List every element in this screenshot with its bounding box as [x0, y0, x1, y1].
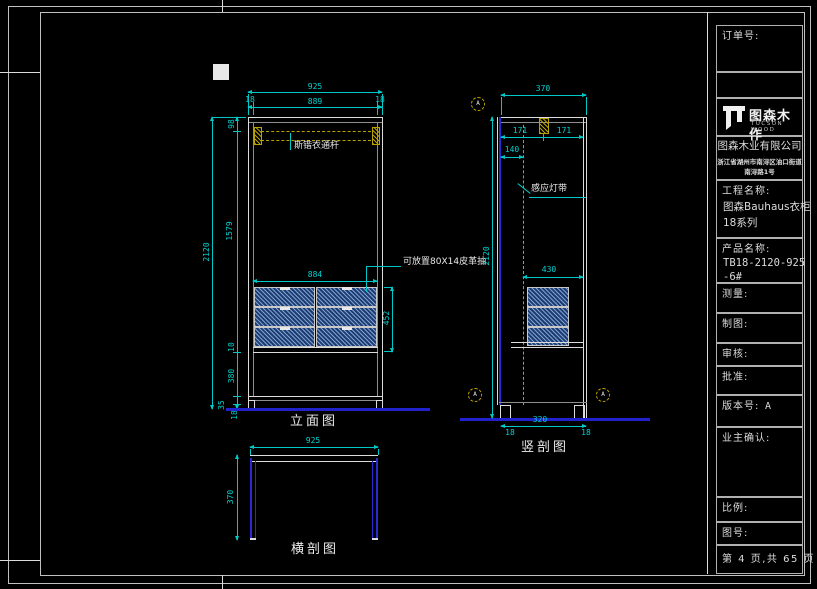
floor-line: [226, 408, 430, 411]
titleblock-cell-logo: 图森木作 TUCSON WOOD: [716, 98, 803, 137]
measure-label: 测量:: [722, 289, 748, 300]
dimension-line: [212, 117, 213, 409]
detail-callout: A: [471, 97, 485, 111]
front-view-title: 立面图: [290, 415, 338, 428]
dim-mid-seg: 1579: [226, 221, 234, 240]
rod-bracket-left: [254, 127, 262, 145]
dim-tick: [233, 396, 241, 397]
dim-bottom-right: 18: [581, 429, 591, 437]
review-label: 审核:: [722, 349, 748, 360]
section-bottom-rail: [499, 402, 587, 403]
hsection-left-cap: [250, 538, 256, 540]
dim-led-offset: 140: [505, 146, 519, 154]
dim-tick: [233, 352, 241, 353]
led-strip-dashed: [523, 125, 524, 405]
dim-drawer-height: 452: [383, 311, 391, 325]
hsection-back-rail: [250, 455, 378, 456]
rod-label: 斯锴衣通杆: [294, 142, 339, 151]
dim-bottom-span: 320: [533, 416, 547, 424]
dim-back-seg: 171: [557, 127, 571, 135]
hsection-back-rail-inner: [250, 461, 378, 462]
dimension-line: [501, 95, 586, 96]
hsection-right-panel-inner: [372, 461, 373, 540]
drawer-front: [316, 307, 377, 327]
product-code-1: TB18-2120-925: [723, 257, 805, 270]
titleblock-cell-drawing-no: 图号:: [716, 522, 803, 545]
drawer-handle: [342, 327, 352, 330]
cad-sheet: 925 18 889 18 2120 98 1579 10 380 35 18 …: [0, 0, 817, 589]
extension-line: [382, 94, 383, 115]
dim-base-seg: 18: [231, 410, 239, 420]
dim-drawer-depth: 430: [542, 266, 556, 274]
tucson-wood-logo-icon: [723, 106, 745, 128]
hsection-left-panel-inner: [255, 461, 256, 540]
inner-frame: [40, 12, 805, 576]
dimension-line: [501, 137, 583, 138]
dimension-line: [253, 281, 377, 282]
version-label: 版本号:: [722, 401, 759, 412]
page-number: 第 4 页,共 65 页: [722, 554, 815, 565]
section-front-panel: [583, 117, 584, 418]
extension-line: [384, 351, 392, 352]
dimension-line: [248, 107, 382, 108]
extension-line: [248, 94, 249, 115]
extension-line: [378, 449, 379, 455]
titleblock-cell-project: 工程名称: 图森Bauhaus衣柜 18系列: [716, 180, 803, 238]
dim-section-total-height: 2120: [483, 246, 491, 265]
drawer-front: [254, 307, 315, 327]
callout-text: A: [476, 100, 480, 107]
section-leg-right: [574, 405, 585, 419]
detail-callout: A: [596, 388, 610, 402]
project-label: 工程名称:: [722, 186, 770, 197]
dimension-line: [250, 447, 378, 448]
drawer-handle: [280, 307, 290, 310]
floor-line: [460, 418, 650, 421]
product-code-2: -6#: [723, 271, 742, 284]
drawer-section: [527, 307, 569, 327]
bottom-rail-inner: [248, 400, 382, 401]
dim-bottom-left: 18: [505, 429, 515, 437]
order-label: 订单号:: [722, 31, 759, 42]
approve-label: 批准:: [722, 372, 748, 383]
detail-callout: A: [468, 388, 482, 402]
cabinet-top-rail: [248, 117, 382, 118]
drawer-front: [254, 287, 315, 307]
drawer-note: 可放置80X14皮革抽: [403, 258, 486, 267]
cabinet-left-panel-inner: [253, 122, 254, 396]
leader-line: [366, 266, 401, 267]
titleblock-cell-review: 审核:: [716, 343, 803, 366]
leader-line: [366, 266, 367, 292]
callout-text: A: [473, 391, 477, 398]
cabinet-top-rail-inner: [248, 122, 382, 123]
dimension-line: [392, 287, 393, 352]
titleblock-cell-owner: 业主确认:: [716, 427, 803, 497]
company-address-2: 南浔路1号: [717, 166, 802, 176]
extension-line: [384, 287, 392, 288]
rod-bracket-right: [372, 127, 380, 145]
titleblock-cell-version: 版本号: A: [716, 395, 803, 427]
drawer-front: [316, 327, 377, 347]
leader-line: [290, 133, 291, 150]
extension-line: [586, 97, 587, 115]
titleblock-cell-scale: 比例:: [716, 497, 803, 522]
titleblock-cell-draft: 制图:: [716, 313, 803, 343]
fold-mark-bottom: [222, 575, 223, 589]
vsection-view-title: 竖剖图: [521, 441, 569, 454]
drawer-front: [254, 327, 315, 347]
cabinet-left-panel: [248, 117, 249, 408]
dim-tick: [233, 404, 241, 405]
section-back-face: [497, 117, 498, 405]
drawer-shelf-section: [511, 342, 583, 348]
dim-drawer-width: 884: [308, 271, 322, 279]
dimension-line: [523, 277, 583, 278]
hsection-view-title: 横剖图: [291, 543, 339, 556]
drawer-base-shelf: [253, 347, 378, 353]
dimension-line: [501, 157, 523, 158]
extension-line: [377, 102, 378, 115]
dim-hsection-depth: 370: [227, 490, 235, 504]
titleblock-cell-order: 订单号:: [716, 25, 803, 72]
dimension-line: [237, 117, 238, 409]
led-label: 感应灯带: [531, 185, 567, 194]
drawer-handle: [280, 327, 290, 330]
dimension-line: [237, 455, 238, 540]
dim-tick: [543, 133, 544, 141]
dim-lower-seg: 380: [228, 369, 236, 383]
titleblock-cell-blank: [716, 72, 803, 98]
leader-underline: [529, 197, 586, 198]
bottom-rail: [248, 396, 382, 397]
dim-total-height: 2120: [203, 242, 211, 261]
dimension-line: [248, 92, 382, 93]
drawer-handle: [280, 287, 290, 290]
dim-hsection-width: 925: [306, 437, 320, 445]
callout-text: A: [601, 391, 605, 398]
extension-line: [253, 102, 254, 115]
margin-tick-top: [0, 72, 40, 73]
section-back-panel: [499, 117, 501, 405]
titleblock-cell-product: 产品名称: TB18-2120-925 -6#: [716, 238, 803, 283]
extension-line: [212, 117, 246, 118]
drawer-front: [316, 287, 377, 307]
plot-stamp-square: [213, 64, 229, 80]
drawer-section: [527, 287, 569, 307]
owner-confirm-label: 业主确认:: [722, 433, 770, 444]
company-name: 图森木业有限公司: [717, 140, 802, 153]
fold-mark-top: [222, 0, 223, 12]
cabinet-right-panel-inner: [377, 122, 378, 396]
dim-tick: [233, 131, 241, 132]
dim-leg-seg: 35: [218, 400, 226, 410]
hsection-right-panel: [376, 458, 378, 540]
hanging-rod-dashed: [261, 131, 371, 132]
scale-label: 比例:: [722, 503, 748, 514]
titleblock-divider: [707, 12, 708, 574]
rod-section: [539, 118, 549, 134]
dim-gap-seg: 10: [228, 342, 236, 352]
logo-sub: TUCSON WOOD: [751, 121, 802, 133]
project-name-2: 18系列: [723, 217, 757, 230]
dim-depth: 370: [536, 85, 550, 93]
draft-label: 制图:: [722, 319, 748, 330]
dim-total-width: 925: [308, 83, 322, 91]
section-front-face: [586, 117, 587, 418]
titleblock-cell-measure: 测量:: [716, 283, 803, 313]
titleblock-cell-page: 第 4 页,共 65 页: [716, 545, 803, 574]
dimension-line: [501, 426, 586, 427]
dim-front-seg: 171: [513, 127, 527, 135]
project-name-1: 图森Bauhaus衣柜: [723, 201, 811, 214]
section-leg-left: [500, 405, 511, 419]
company-address-1: 浙江省湖州市南浔区油口街道: [717, 156, 802, 166]
extension-line: [501, 97, 502, 115]
hsection-left-panel: [250, 458, 252, 540]
dimension-line: [492, 117, 493, 418]
hsection-right-cap: [372, 538, 378, 540]
cabinet-right-panel: [382, 117, 383, 408]
drawer-handle: [342, 307, 352, 310]
drawing-no-label: 图号:: [722, 528, 748, 539]
margin-tick-bottom: [0, 560, 40, 561]
titleblock-cell-company: 图森木业有限公司 浙江省湖州市南浔区油口街道 南浔路1号: [716, 135, 803, 180]
drawer-handle: [342, 287, 352, 290]
dim-inner-width: 889: [308, 98, 322, 106]
product-label: 产品名称:: [722, 244, 770, 255]
dim-top-seg: 98: [228, 119, 236, 129]
version-value: A: [765, 401, 771, 412]
titleblock-cell-approve: 批准:: [716, 366, 803, 395]
